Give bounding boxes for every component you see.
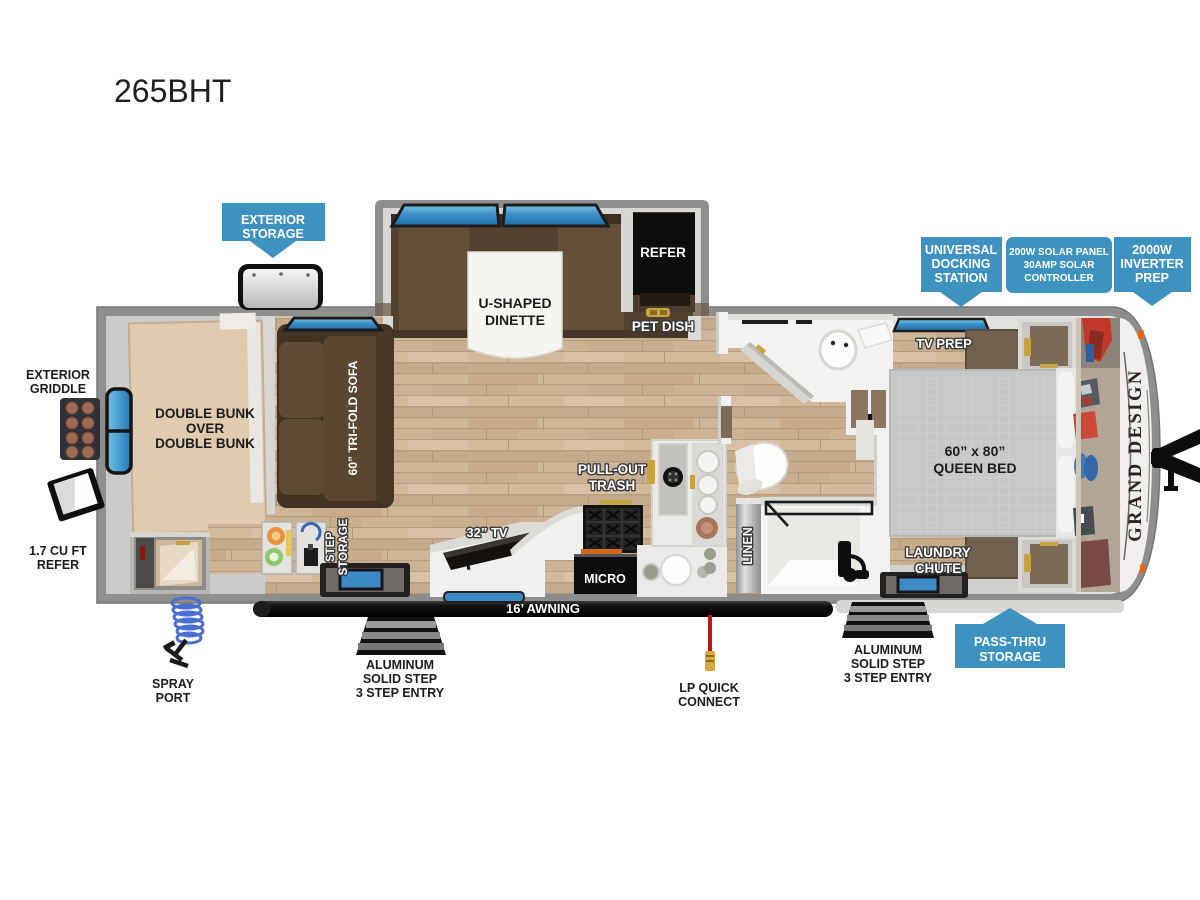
svg-text:PASS-THRU: PASS-THRU bbox=[974, 635, 1046, 649]
svg-text:OVER: OVER bbox=[186, 421, 225, 436]
svg-text:SOLID STEP: SOLID STEP bbox=[363, 672, 437, 686]
svg-text:INVERTER: INVERTER bbox=[1120, 257, 1183, 271]
svg-text:CONTROLLER: CONTROLLER bbox=[1024, 273, 1094, 284]
svg-text:PULL-OUT: PULL-OUT bbox=[578, 462, 647, 477]
svg-text:SOLID STEP: SOLID STEP bbox=[851, 657, 925, 671]
svg-text:CONNECT: CONNECT bbox=[678, 695, 740, 709]
svg-text:U-SHAPED: U-SHAPED bbox=[478, 295, 551, 311]
svg-text:GRIDDLE: GRIDDLE bbox=[30, 382, 86, 396]
svg-text:PET DISH: PET DISH bbox=[632, 319, 694, 334]
svg-text:DOUBLE BUNK: DOUBLE BUNK bbox=[155, 406, 255, 421]
svg-text:DINETTE: DINETTE bbox=[485, 312, 545, 328]
svg-text:DOCKING: DOCKING bbox=[931, 257, 990, 271]
svg-text:STEP: STEP bbox=[325, 532, 337, 562]
svg-text:ALUMINUM: ALUMINUM bbox=[366, 658, 434, 672]
svg-text:EXTERIOR: EXTERIOR bbox=[26, 368, 90, 382]
svg-text:PREP: PREP bbox=[1135, 271, 1169, 285]
svg-text:REFER: REFER bbox=[640, 245, 686, 260]
svg-text:EXTERIOR: EXTERIOR bbox=[241, 213, 305, 227]
svg-text:DOUBLE BUNK: DOUBLE BUNK bbox=[155, 436, 255, 451]
svg-text:TRASH: TRASH bbox=[589, 478, 636, 493]
svg-text:CHUTE: CHUTE bbox=[915, 561, 962, 576]
svg-text:265BHT: 265BHT bbox=[114, 73, 231, 109]
svg-text:16’ AWNING: 16’ AWNING bbox=[506, 601, 580, 616]
svg-text:QUEEN BED: QUEEN BED bbox=[933, 460, 1016, 476]
svg-text:GRAND DESIGN: GRAND DESIGN bbox=[1126, 368, 1146, 541]
svg-text:60” x 80”: 60” x 80” bbox=[945, 443, 1006, 459]
svg-text:STATION: STATION bbox=[934, 271, 987, 285]
svg-text:60” TRI-FOLD SOFA: 60” TRI-FOLD SOFA bbox=[346, 360, 360, 475]
svg-text:LP QUICK: LP QUICK bbox=[679, 681, 739, 695]
svg-text:3 STEP ENTRY: 3 STEP ENTRY bbox=[356, 686, 445, 700]
svg-text:ALUMINUM: ALUMINUM bbox=[854, 643, 922, 657]
svg-text:1.7 CU FT: 1.7 CU FT bbox=[29, 544, 87, 558]
svg-text:UNIVERSAL: UNIVERSAL bbox=[925, 243, 998, 257]
svg-text:200W SOLAR PANEL: 200W SOLAR PANEL bbox=[1009, 247, 1109, 258]
svg-text:PORT: PORT bbox=[156, 691, 191, 705]
svg-text:STORAGE: STORAGE bbox=[338, 518, 350, 575]
svg-text:3 STEP ENTRY: 3 STEP ENTRY bbox=[844, 671, 933, 685]
svg-text:30AMP SOLAR: 30AMP SOLAR bbox=[1024, 260, 1096, 271]
svg-text:LINEN: LINEN bbox=[741, 527, 755, 565]
svg-text:REFER: REFER bbox=[37, 558, 79, 572]
svg-text:32” TV: 32” TV bbox=[466, 525, 508, 540]
svg-text:MICRO: MICRO bbox=[584, 572, 626, 586]
svg-text:STORAGE: STORAGE bbox=[979, 650, 1041, 664]
svg-text:STORAGE: STORAGE bbox=[242, 227, 304, 241]
svg-text:2000W: 2000W bbox=[1132, 243, 1172, 257]
svg-text:LAUNDRY: LAUNDRY bbox=[905, 545, 971, 560]
svg-text:TV PREP: TV PREP bbox=[916, 336, 972, 351]
svg-text:SPRAY: SPRAY bbox=[152, 677, 195, 691]
